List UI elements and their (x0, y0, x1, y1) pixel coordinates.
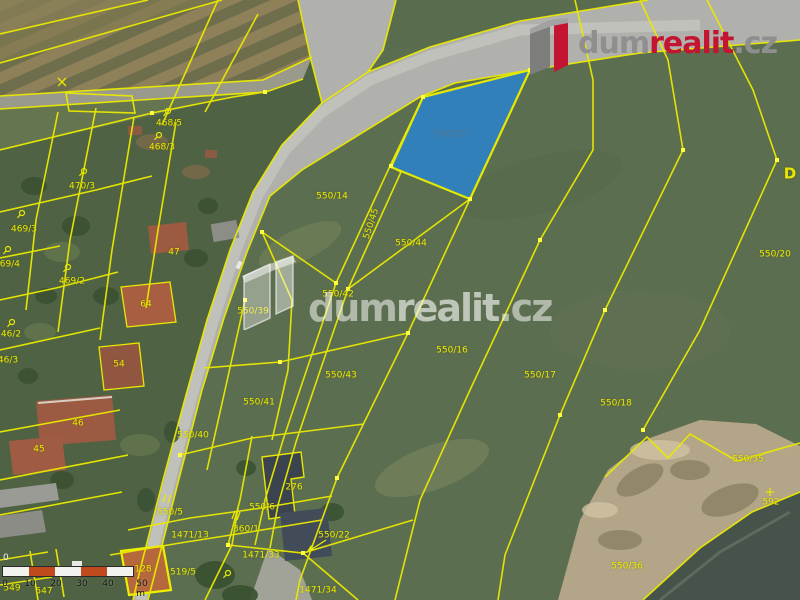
parcel-label: 469/4 (0, 261, 20, 270)
parcel-label: 276 (285, 484, 302, 493)
parcel-label: 550/36 (611, 563, 643, 572)
parcel-label: 470/3 (69, 183, 95, 192)
map-image (0, 0, 800, 600)
parcel-label: 550/17 (524, 372, 556, 381)
parcel-label: 46 (72, 420, 83, 429)
parcel-label: 45 (33, 446, 44, 455)
parcel-label: 550/22 (318, 532, 350, 541)
parcel-label: 469/3 (11, 226, 37, 235)
parcel-label: 550/16 (436, 347, 468, 356)
parcel-label: 550/39 (237, 308, 269, 317)
scale-tick: 30 (76, 579, 87, 589)
parcel-label: 469/2 (59, 278, 85, 287)
parcel-label: 360/1 (233, 526, 259, 535)
parcel-label: 468/5 (156, 120, 182, 129)
parcel-label: 550/42 (322, 291, 354, 300)
parcel-label: 47 (168, 249, 179, 258)
parcel-label: 64 (140, 301, 151, 310)
logo-cz: .cz (733, 26, 777, 61)
parcel-label: 550/6 (249, 504, 275, 513)
cadastral-map[interactable]: 468/5 468/3 470/3 469/3 469/4 469/2 46/2… (0, 0, 800, 600)
parcel-label: 46/2 (1, 331, 21, 340)
parcel-label: 550/41 (243, 399, 275, 408)
logo-dum: dum (578, 26, 649, 61)
parcel-label: 550/18 (600, 400, 632, 409)
dumrealit-logo-icon (528, 13, 574, 79)
dumrealit-logo-text: dumrealit.cz (578, 27, 777, 61)
scale-zero: 0 (3, 553, 9, 563)
watermark-corner-letter: D (784, 170, 796, 179)
scale-bar-segments (2, 566, 134, 577)
scale-tick: 10 (24, 579, 35, 589)
parcel-label: 550/5 (157, 509, 183, 518)
scale-tick: 40 (102, 579, 113, 589)
parcel-label: 550/44 (395, 240, 427, 249)
parcel-label: 468/3 (149, 144, 175, 153)
logo-realit: realit (649, 26, 733, 61)
parcel-label: 46/3 (0, 357, 18, 366)
highlighted-parcel-label: 550/15 (434, 131, 466, 140)
parcel-label: 592 (762, 499, 779, 508)
parcel-label: 550/14 (316, 193, 348, 202)
parcel-label: 550/43 (325, 372, 357, 381)
parcel-label: 550/40 (177, 432, 209, 441)
parcel-label: 1471/34 (299, 587, 336, 596)
parcel-label: 550/35 (732, 456, 764, 465)
parcel-label: 550/20 (759, 251, 791, 260)
scale-tick: 0 (2, 579, 8, 589)
scale-tick: 20 (50, 579, 61, 589)
parcel-label: 54 (113, 361, 124, 370)
scale-bar: 0 0 10 20 30 40 50 m (2, 553, 177, 598)
parcel-label: 1471/13 (171, 532, 208, 541)
parcel-label: 1471/33 (242, 552, 279, 561)
scale-tick: 50 m (136, 579, 147, 599)
